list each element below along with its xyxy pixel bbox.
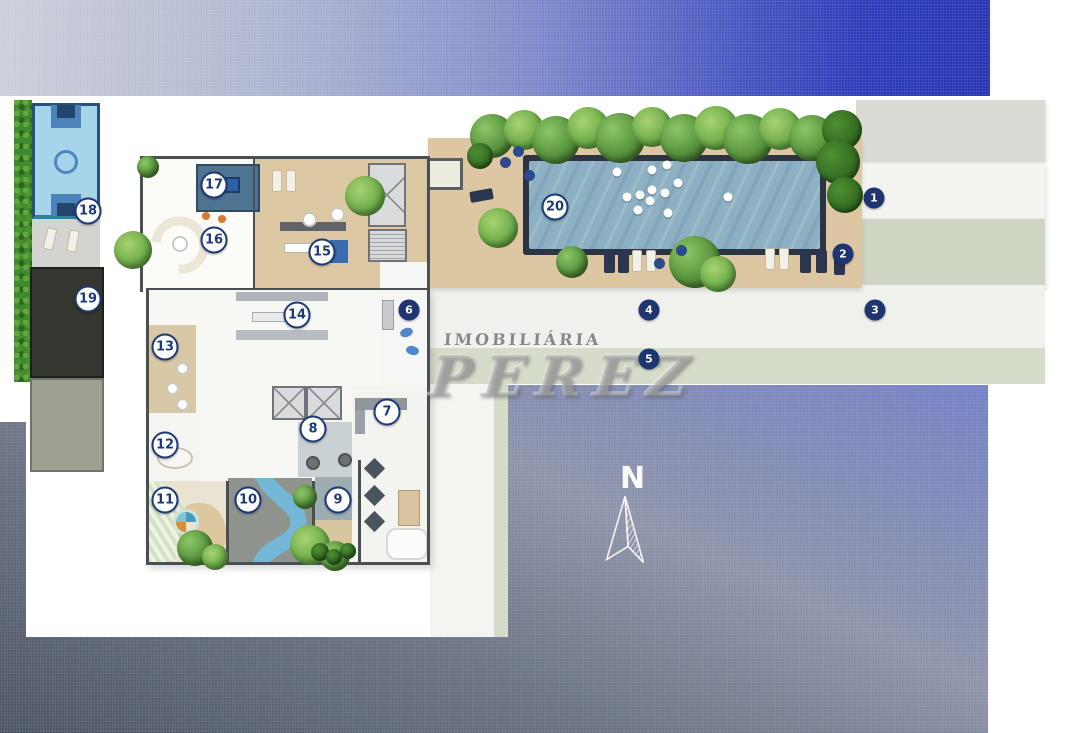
unit-marker-18: 18 [75, 198, 102, 225]
unit-marker-3: 3 [865, 300, 886, 321]
unit-marker-6: 6 [399, 300, 420, 321]
unit-marker-16: 16 [201, 227, 228, 254]
unit-marker-10: 10 [235, 487, 262, 514]
unit-marker-9: 9 [325, 487, 352, 514]
unit-marker-15: 15 [309, 239, 336, 266]
unit-marker-12: 12 [152, 432, 179, 459]
unit-marker-11: 11 [152, 487, 179, 514]
north-compass: N [596, 455, 656, 570]
unit-marker-17: 17 [201, 172, 228, 199]
unit-marker-1: 1 [864, 188, 885, 209]
unit-marker-14: 14 [284, 302, 311, 329]
unit-marker-20: 20 [542, 194, 569, 221]
unit-marker-2: 2 [833, 244, 854, 265]
unit-marker-19: 19 [75, 286, 102, 313]
unit-marker-7: 7 [374, 399, 401, 426]
north-label: N [620, 461, 645, 496]
unit-marker-8: 8 [300, 416, 327, 443]
unit-marker-5: 5 [639, 349, 660, 370]
north-arrow-icon [595, 492, 651, 572]
unit-marker-13: 13 [152, 334, 179, 361]
floorplan-render: IMOBILIÁRIA PEREZ 1234567891011121314151… [0, 0, 1080, 733]
markers-layer: 1234567891011121314151617181920 [0, 0, 1080, 733]
unit-marker-4: 4 [639, 300, 660, 321]
